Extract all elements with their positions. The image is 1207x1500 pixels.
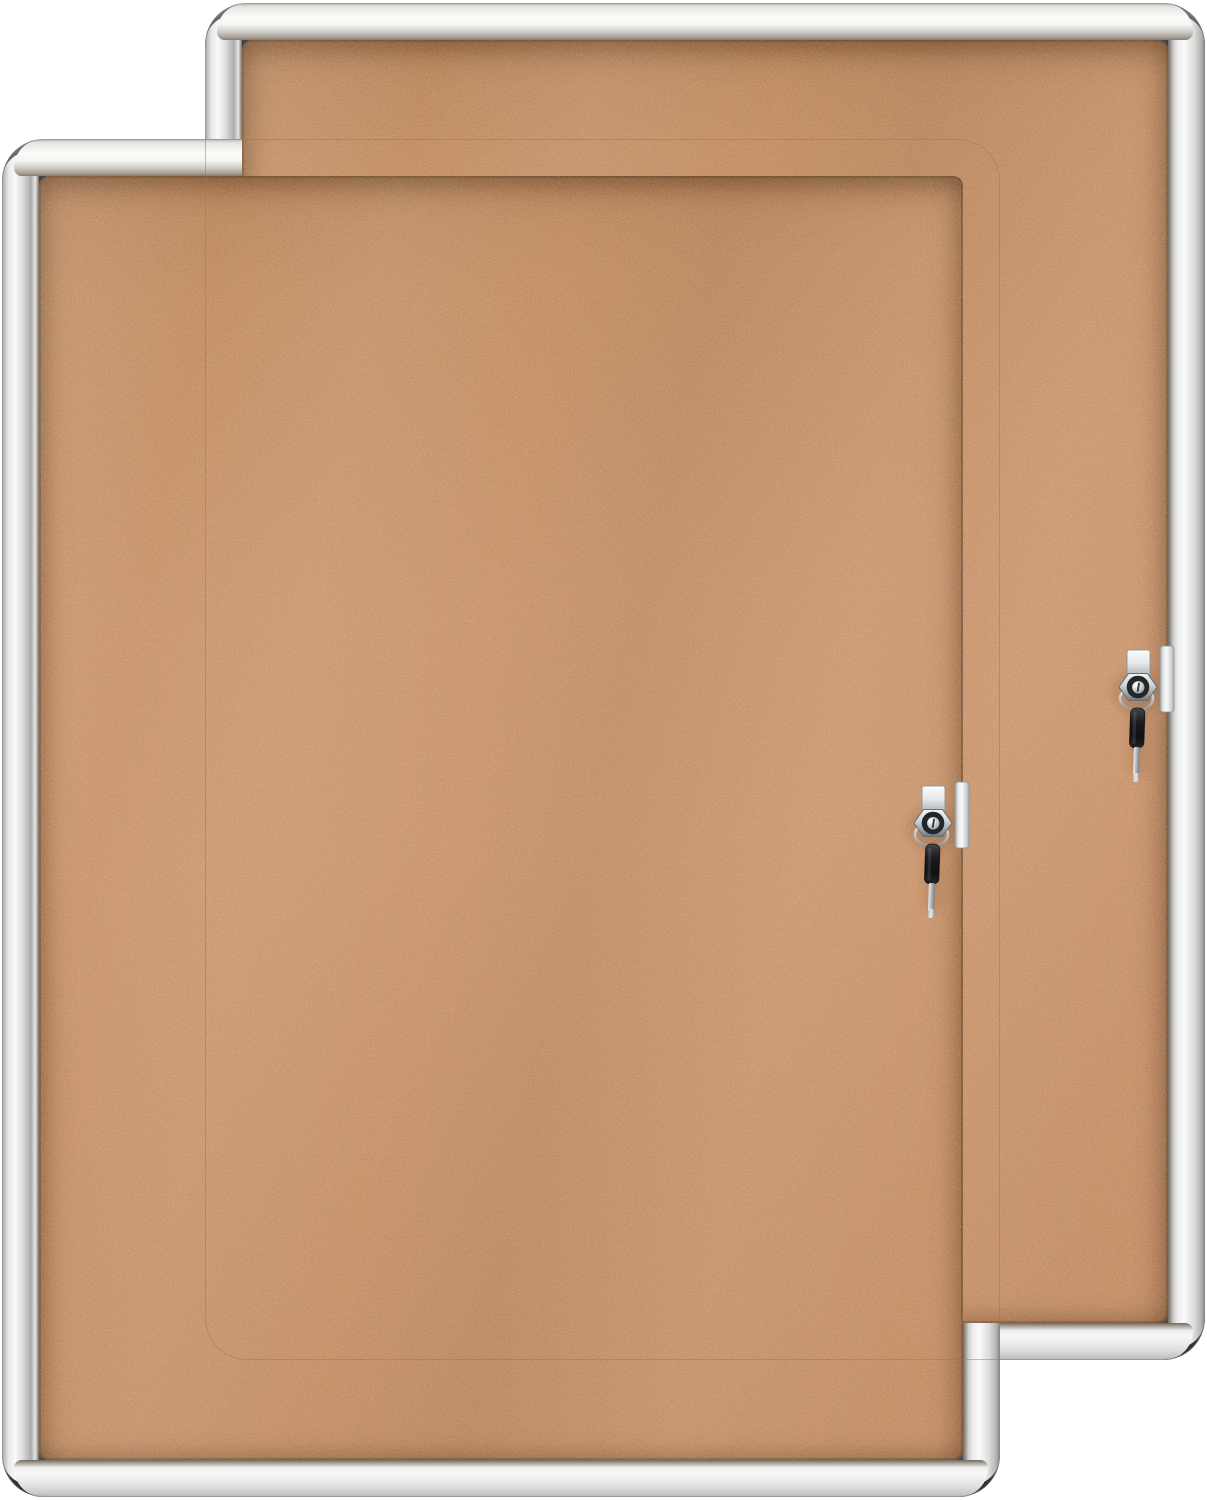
key-shaft bbox=[928, 883, 935, 911]
key-tooth bbox=[1138, 775, 1140, 778]
key-tooth bbox=[933, 911, 935, 914]
cork-panel bbox=[39, 176, 963, 1460]
product-photo bbox=[0, 0, 1207, 1500]
frame-rail-bottom bbox=[14, 1460, 988, 1497]
glass-reflection bbox=[39, 176, 963, 1460]
latch-plate[interactable] bbox=[955, 782, 969, 848]
key-tooth bbox=[933, 916, 936, 919]
frame-rail-left bbox=[2, 151, 39, 1485]
key-shaft bbox=[1133, 746, 1140, 774]
key-head bbox=[924, 844, 940, 884]
key-tooth bbox=[1138, 779, 1141, 782]
cylinder-highlight bbox=[929, 819, 932, 822]
frame-rail-top bbox=[217, 3, 1193, 40]
cam-lock-assembly bbox=[1107, 642, 1179, 792]
key-head bbox=[1129, 707, 1145, 747]
latch-plate[interactable] bbox=[1160, 646, 1174, 712]
cam-lock-assembly bbox=[902, 778, 974, 928]
cylinder-highlight bbox=[1134, 683, 1137, 686]
bulletin-board-front bbox=[2, 139, 1000, 1497]
